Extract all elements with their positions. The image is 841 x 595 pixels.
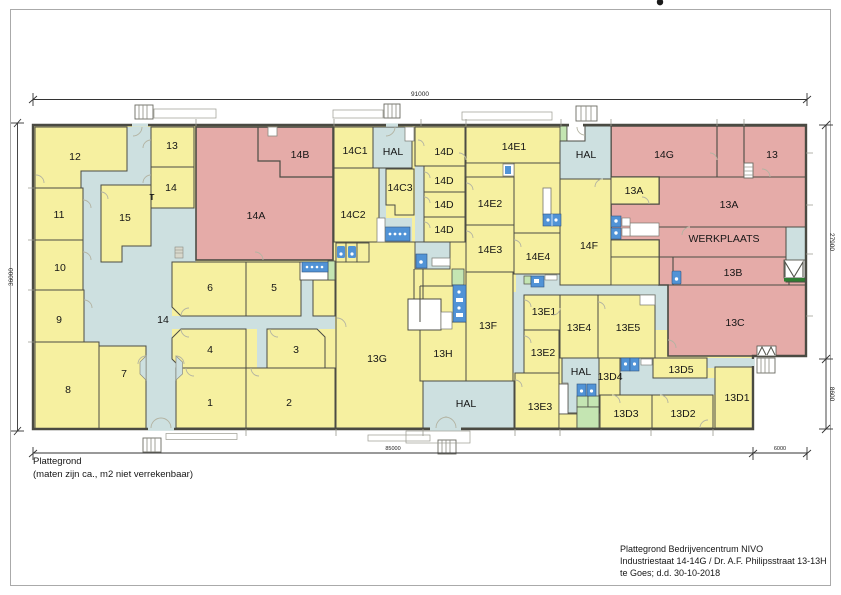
svg-text:HAL: HAL — [383, 146, 404, 158]
svg-text:13: 13 — [766, 149, 778, 161]
svg-text:5: 5 — [271, 282, 277, 294]
svg-text:7: 7 — [121, 368, 127, 380]
svg-text:10: 10 — [54, 262, 66, 274]
svg-text:14D: 14D — [434, 175, 454, 187]
svg-text:15: 15 — [119, 212, 131, 224]
svg-text:13D2: 13D2 — [670, 408, 695, 420]
svg-text:4: 4 — [207, 344, 213, 356]
svg-text:2: 2 — [286, 397, 292, 409]
svg-text:WERKPLAATS: WERKPLAATS — [689, 233, 760, 245]
svg-text:13E5: 13E5 — [616, 322, 641, 334]
svg-text:HAL: HAL — [456, 398, 477, 410]
svg-text:14D: 14D — [434, 224, 454, 236]
svg-text:13C: 13C — [725, 317, 745, 329]
svg-text:14C2: 14C2 — [340, 209, 365, 221]
svg-text:Industriestaat 14-14G / Dr. A.: Industriestaat 14-14G / Dr. A.F. Philips… — [620, 556, 827, 566]
svg-text:14E2: 14E2 — [478, 198, 503, 210]
svg-text:te Goes; d.d. 30-10-2018: te Goes; d.d. 30-10-2018 — [620, 568, 720, 578]
svg-text:14D: 14D — [434, 146, 454, 158]
svg-text:HAL: HAL — [571, 366, 592, 378]
svg-text:13E3: 13E3 — [528, 401, 553, 413]
svg-text:14C1: 14C1 — [342, 145, 367, 157]
svg-text:Plattegrond Bedrijvencentrum N: Plattegrond Bedrijvencentrum NIVO — [620, 544, 763, 554]
svg-text:HAL: HAL — [576, 149, 597, 161]
svg-text:14F: 14F — [580, 240, 598, 252]
svg-text:91000: 91000 — [411, 91, 429, 98]
svg-text:14G: 14G — [654, 149, 674, 161]
svg-text:11: 11 — [54, 209, 65, 221]
svg-text:13F: 13F — [479, 320, 497, 332]
svg-text:13B: 13B — [724, 267, 743, 279]
svg-text:13H: 13H — [433, 348, 452, 360]
svg-text:8600: 8600 — [828, 387, 835, 402]
svg-text:13A: 13A — [720, 199, 739, 211]
svg-text:13E1: 13E1 — [532, 306, 557, 318]
svg-text:14B: 14B — [291, 149, 310, 161]
svg-text:85000: 85000 — [385, 446, 400, 452]
svg-text:14: 14 — [165, 182, 177, 194]
svg-text:13D1: 13D1 — [724, 392, 749, 404]
svg-text:14E4: 14E4 — [526, 251, 551, 263]
svg-text:14E3: 14E3 — [478, 244, 503, 256]
svg-text:13G: 13G — [367, 353, 387, 365]
svg-text:13E2: 13E2 — [531, 347, 556, 359]
svg-text:9: 9 — [56, 314, 62, 326]
svg-text:13D4: 13D4 — [597, 371, 622, 383]
svg-text:Plattegrond: Plattegrond — [33, 456, 82, 467]
svg-text:13A: 13A — [625, 185, 644, 197]
svg-text:6: 6 — [207, 282, 213, 294]
svg-text:14E1: 14E1 — [502, 141, 527, 153]
svg-text:12: 12 — [69, 151, 81, 163]
svg-text:T: T — [150, 193, 155, 202]
svg-text:14C3: 14C3 — [387, 182, 412, 194]
svg-text:13E4: 13E4 — [567, 322, 592, 334]
svg-text:14: 14 — [157, 314, 169, 326]
svg-text:13: 13 — [166, 140, 178, 152]
svg-text:14A: 14A — [247, 210, 266, 222]
svg-text:13D3: 13D3 — [613, 408, 638, 420]
svg-text:14D: 14D — [434, 199, 454, 211]
svg-text:13D5: 13D5 — [668, 364, 693, 376]
svg-text:27900: 27900 — [828, 233, 835, 251]
svg-text:36000: 36000 — [8, 268, 15, 286]
svg-text:6000: 6000 — [774, 446, 786, 452]
svg-text:1: 1 — [207, 397, 213, 409]
svg-text:(maten zijn ca., m2 niet verre: (maten zijn ca., m2 niet verrekenbaar) — [33, 469, 193, 480]
svg-text:8: 8 — [65, 384, 71, 396]
svg-text:3: 3 — [293, 344, 299, 356]
